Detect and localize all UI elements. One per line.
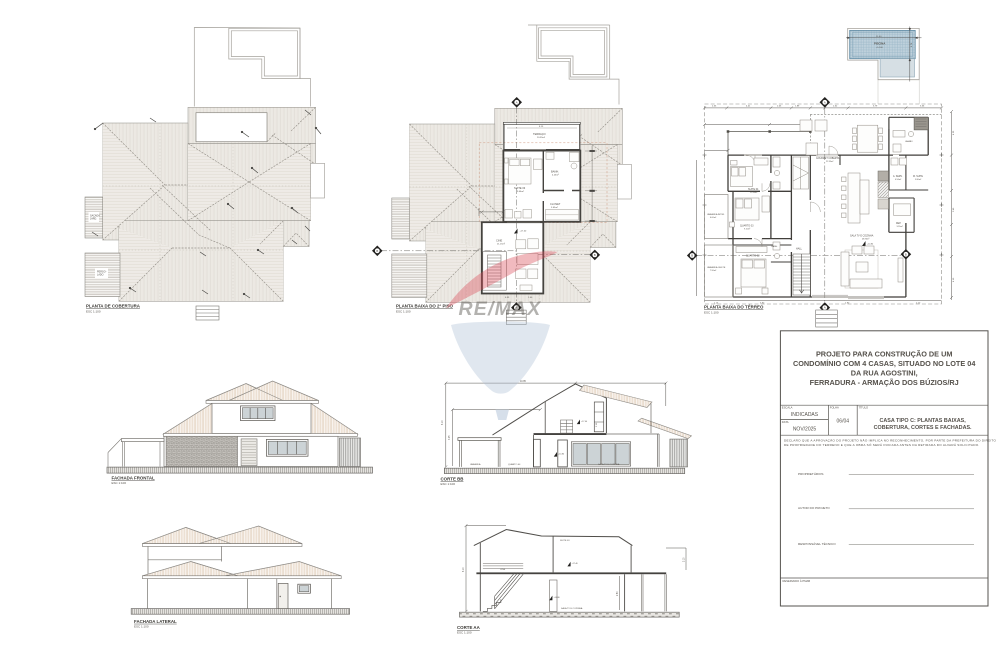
svg-text:+14.60: +14.60 [876,47,884,49]
svg-text:3.95m²: 3.95m² [897,225,904,228]
svg-text:PISCINA: PISCINA [874,42,885,46]
svg-text:QUARTO 03: QUARTO 03 [740,225,754,228]
svg-text:TÍTULO: TÍTULO [859,406,869,410]
svg-text:A: A [824,100,826,104]
svg-text:3.65m²: 3.65m² [551,206,558,209]
svg-text:CASA TIPO C: PLANTAS BAIXAS,: CASA TIPO C: PLANTAS BAIXAS, [879,418,966,424]
svg-text:TERRAÇO: TERRAÇO [533,132,546,136]
svg-text:ESCALA: ESCALA [782,406,793,410]
svg-text:9.06m²: 9.06m² [517,190,524,193]
svg-text:7.90m²: 7.90m² [710,269,717,272]
svg-text:SALA TV E COZINHA: SALA TV E COZINHA [598,463,620,466]
svg-text:B: B [905,252,907,256]
svg-text:SALA TV E COZINHA: SALA TV E COZINHA [561,607,583,610]
svg-text:RESERVADO À PMAB: RESERVADO À PMAB [783,579,811,583]
svg-text:NOV/2025: NOV/2025 [793,427,817,433]
svg-text:ESC 1:100: ESC 1:100 [396,310,411,314]
svg-text:ESC 1:100: ESC 1:100 [134,625,149,629]
svg-text:10.85: 10.85 [520,381,526,383]
svg-text:6.10: 6.10 [463,567,465,572]
svg-text:LADO: LADO [97,274,104,277]
svg-text:LAVABO: LAVABO [905,140,913,143]
svg-text:DA RUA AGOSTINI,: DA RUA AGOSTINI, [851,368,918,377]
svg-text:20.35m²: 20.35m² [537,136,545,139]
svg-text:SALA TV E COZINHA: SALA TV E COZINHA [850,235,874,238]
svg-text:B: B [594,253,596,257]
svg-text:CORTE BB: CORTE BB [441,477,464,482]
svg-text:VARANDA INTIM.: VARANDA INTIM. [707,213,725,216]
svg-text:CONDOMÍNIO COM 4 CASAS, SITUA: CONDOMÍNIO COM 4 CASAS, SITUADO NO LOTE … [793,359,976,368]
svg-text:INDICADAS: INDICADAS [791,412,819,418]
svg-text:PLANTA DE COBERTURA: PLANTA DE COBERTURA [86,304,141,309]
svg-text:+14.80: +14.80 [554,597,561,599]
svg-text:PLANTA BAIXA DO TÉRREO: PLANTA BAIXA DO TÉRREO [704,305,764,310]
svg-text:5.80m²: 5.80m² [915,178,922,181]
svg-text:PLANTA BAIXA DO 2° PISO: PLANTA BAIXA DO 2° PISO [396,304,454,309]
svg-text:SUITE 03: SUITE 03 [514,186,526,190]
svg-text:CINE: CINE [496,239,502,243]
svg-text:B: B [691,254,693,258]
svg-text:PROJETO PARA CONSTRUÇÃO DE UM: PROJETO PARA CONSTRUÇÃO DE UM [816,349,953,358]
svg-text:DATA: DATA [782,420,789,424]
svg-text:22.35m²: 22.35m² [826,160,834,163]
svg-text:A: A [824,306,826,310]
svg-text:+14.80: +14.80 [867,244,874,246]
svg-text:2.80: 2.80 [617,591,619,596]
svg-text:QUARTO 04: QUARTO 04 [508,463,521,466]
svg-text:COBERTURA, CORTES E FACHADAS.: COBERTURA, CORTES E FACHADAS. [874,425,972,431]
svg-text:RESPONSÁVEL TÉCNICO: RESPONSÁVEL TÉCNICO [798,541,836,546]
svg-text:2.10: 2.10 [683,557,685,562]
svg-text:FACHADA LATERAL: FACHADA LATERAL [134,619,177,624]
svg-text:12.60m²: 12.60m² [750,191,758,194]
svg-text:A. SERV.: A. SERV. [893,175,903,178]
svg-text:4.56m²: 4.56m² [895,178,902,181]
svg-text:CLOSET: CLOSET [550,202,561,206]
svg-text:6.00m²: 6.00m² [710,216,717,219]
svg-text:ESC 1:100: ESC 1:100 [112,481,127,485]
svg-text:AUTOR DO PROJETO: AUTOR DO PROJETO [798,506,830,510]
svg-text:BANH.: BANH. [551,170,559,174]
svg-text:+17.40: +17.40 [581,421,588,423]
svg-text:+17.40: +17.40 [520,231,528,233]
svg-text:PROPRIETÁRIOS: PROPRIETÁRIOS [798,472,823,476]
svg-text:48.96m²: 48.96m² [862,238,870,241]
svg-text:11.00: 11.00 [876,36,882,38]
svg-text:VARANDA: VARANDA [470,463,481,466]
svg-text:DE PROPRIEDADE DO TERRENO E QU: DE PROPRIEDADE DO TERRENO E QUE A OBRA S… [784,442,980,447]
svg-text:VARANDA OESTE: VARANDA OESTE [707,266,726,269]
svg-text:ESC 1:100: ESC 1:100 [441,482,456,486]
svg-text:ESC 1:100: ESC 1:100 [704,311,719,315]
svg-text:CINE: CINE [500,569,506,571]
svg-text:B: B [376,249,378,253]
svg-text:6.10: 6.10 [442,420,444,425]
svg-text:ESC 1:100: ESC 1:100 [86,310,101,314]
svg-text:3.05: 3.05 [449,435,451,440]
svg-text:HALL: HALL [796,248,803,251]
svg-text:FERRADURA - ARMAÇÃO DOS BÚZIOS: FERRADURA - ARMAÇÃO DOS BÚZIOS/RJ [810,378,959,387]
svg-text:M. SUITE: M. SUITE [913,176,923,178]
svg-text:+17.40: +17.40 [572,563,579,565]
svg-text:GOURMET COBERTA: GOURMET COBERTA [816,157,840,160]
svg-text:FACHADA FRONTAL: FACHADA FRONTAL [112,475,155,480]
svg-text:06/04: 06/04 [837,419,850,425]
svg-text:QUARTO 02: QUARTO 02 [746,255,760,258]
svg-text:RE/MAX: RE/MAX [458,298,541,320]
svg-text:DECLARO QUE A APROVAÇÃO DO PRO: DECLARO QUE A APROVAÇÃO DO PROJETO NÃO I… [784,438,997,443]
svg-text:BANH.: BANH. [772,245,779,248]
svg-text:ESC 1:100: ESC 1:100 [457,631,472,635]
svg-text:9.15m²: 9.15m² [744,228,751,231]
svg-text:21.15m²: 21.15m² [497,243,505,246]
svg-text:DEP.: DEP. [896,223,901,225]
svg-text:SUITE 03: SUITE 03 [560,540,570,542]
svg-text:CORTE AA: CORTE AA [457,625,481,630]
svg-text:SUITE 04: SUITE 04 [748,188,759,191]
svg-text:+14.80: +14.80 [558,454,565,456]
svg-text:A: A [516,100,518,104]
svg-text:FOLHA: FOLHA [830,406,839,410]
svg-text:4.26m²: 4.26m² [552,174,559,177]
svg-text:JARD.: JARD. [90,218,97,221]
